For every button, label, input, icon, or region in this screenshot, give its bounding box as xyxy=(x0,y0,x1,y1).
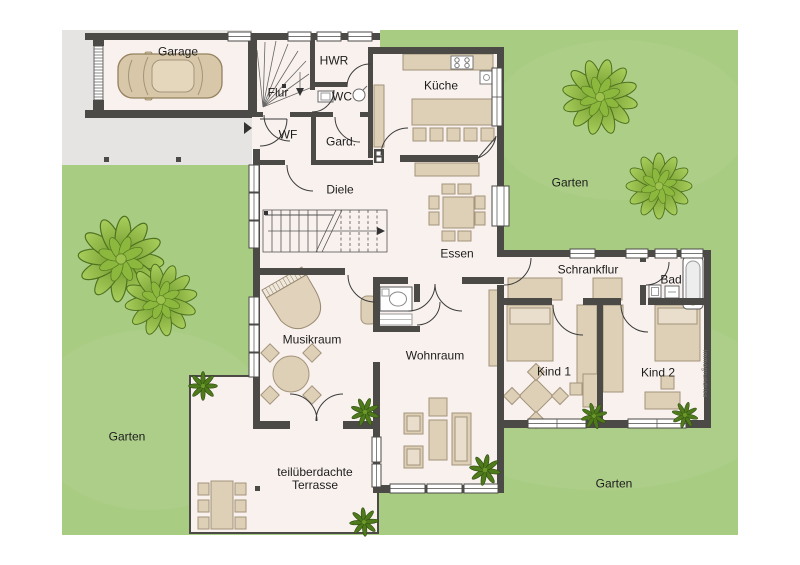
floor-plan: Garage Flur HWR WC Küche WF Gard. Diele … xyxy=(0,0,800,565)
kitchen-counter xyxy=(403,54,493,70)
side-table xyxy=(429,398,447,416)
bar-stool xyxy=(430,128,443,141)
wardrobe xyxy=(593,278,622,300)
chair xyxy=(235,483,246,495)
room-label-schrankflur: Schrankflur xyxy=(558,264,619,277)
driveway-post xyxy=(176,157,181,162)
desk xyxy=(645,392,680,409)
terrace-table xyxy=(211,481,233,529)
chair xyxy=(429,212,439,225)
plant xyxy=(189,372,218,401)
chair xyxy=(475,196,485,209)
garden-label-left: Garten xyxy=(109,431,146,444)
bar-stool xyxy=(464,128,477,141)
sideboard xyxy=(415,163,479,176)
chair xyxy=(235,517,246,529)
room-label-kueche: Küche xyxy=(424,80,458,93)
room-label-terrasse: teilüberdachteTerrasse xyxy=(277,466,352,492)
pillow xyxy=(510,308,550,324)
room-label-gard: Gard. xyxy=(326,136,356,149)
armchair-cushion xyxy=(407,416,420,431)
chair xyxy=(429,196,439,209)
bar-stool xyxy=(447,128,460,141)
wardrobe xyxy=(508,278,562,300)
room-label-kind1: Kind 1 xyxy=(537,366,571,379)
garden-label-bottom: Garten xyxy=(596,478,633,491)
bar-stool xyxy=(481,128,494,141)
coffee-table xyxy=(429,420,447,460)
terrasse-line2: Terrasse xyxy=(292,478,338,492)
bad-sink xyxy=(649,285,661,298)
chair xyxy=(475,212,485,225)
washbasin-unit xyxy=(379,287,412,325)
wardrobe xyxy=(603,305,623,392)
room-label-flur: Flur xyxy=(268,87,289,100)
room-label-wf: WF xyxy=(279,129,298,142)
bad-toilet xyxy=(665,286,679,298)
room-label-bad: Bad xyxy=(660,274,681,287)
room-label-musikraum: Musikraum xyxy=(283,334,342,347)
bar-stool xyxy=(413,128,426,141)
kitchen-sink xyxy=(480,71,493,84)
room-label-essen: Essen xyxy=(440,248,473,261)
pillow xyxy=(658,308,697,324)
chair xyxy=(442,184,455,194)
room-label-wohnraum: Wohnraum xyxy=(406,350,464,363)
terrasse-line1: teilüberdachte xyxy=(277,465,352,479)
dining-table xyxy=(443,197,474,228)
room-label-kind2: Kind 2 xyxy=(641,367,675,380)
chair xyxy=(458,231,471,241)
chair xyxy=(198,483,209,495)
terrace-post xyxy=(255,486,260,491)
armchair-cushion xyxy=(407,449,420,465)
driveway-post xyxy=(104,157,109,162)
room-label-diele: Diele xyxy=(326,184,353,197)
chair xyxy=(458,184,471,194)
cooktop xyxy=(451,56,473,69)
kitchen-island xyxy=(412,99,492,125)
room-label-wc: WC xyxy=(332,91,352,104)
sofa-cushion xyxy=(455,417,467,461)
room-label-hwr: HWR xyxy=(320,55,349,68)
wc-sink xyxy=(318,91,333,102)
entrance-door-gap xyxy=(252,117,261,149)
chair xyxy=(570,383,582,395)
garden-label-top: Garten xyxy=(552,177,589,190)
chair xyxy=(198,500,209,512)
chair xyxy=(442,231,455,241)
appliance xyxy=(374,149,384,163)
tall-cabinet xyxy=(374,85,384,147)
watermark: immogrundriss xyxy=(701,350,708,414)
window xyxy=(492,186,509,226)
round-table xyxy=(273,356,309,392)
chair xyxy=(235,500,246,512)
chair xyxy=(198,517,209,529)
room-label-garage: Garage xyxy=(158,46,198,59)
garage-door xyxy=(94,46,103,100)
car xyxy=(118,52,222,100)
